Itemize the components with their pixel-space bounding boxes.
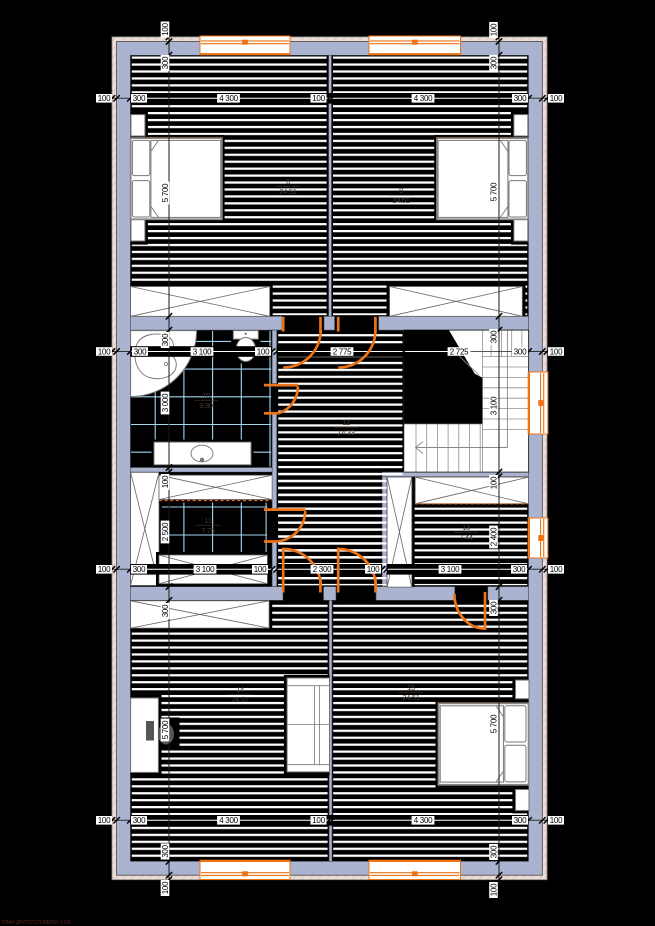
svg-text:300: 300 [161,604,170,617]
svg-text:4 300: 4 300 [414,94,433,103]
svg-text:3 100: 3 100 [489,396,498,415]
svg-text:300: 300 [133,565,146,574]
svg-text:100: 100 [312,816,325,825]
svg-text:300: 300 [134,347,147,356]
svg-text:100: 100 [98,565,111,574]
svg-text:300: 300 [161,333,170,346]
svg-text:2 725: 2 725 [450,347,469,356]
svg-text:3 100: 3 100 [196,565,215,574]
svg-text:100: 100 [98,347,111,356]
svg-text:7.75: 7.75 [201,526,215,535]
svg-text:300: 300 [133,816,146,825]
svg-text:13: 13 [462,523,470,532]
svg-text:15: 15 [407,683,415,692]
svg-text:5 700: 5 700 [489,714,498,733]
svg-text:14: 14 [236,685,244,694]
svg-text:100: 100 [161,475,170,488]
svg-text:300: 300 [514,94,527,103]
svg-text:100: 100 [257,347,270,356]
svg-text:100: 100 [550,565,563,574]
svg-text:7.44: 7.44 [459,533,473,542]
svg-text:300: 300 [489,56,498,69]
svg-text:2 775: 2 775 [333,347,352,356]
svg-text:100: 100 [550,347,563,356]
svg-text:300: 300 [161,844,170,857]
svg-text:9: 9 [399,186,403,195]
svg-text:24.51: 24.51 [231,695,248,704]
svg-text:2 500: 2 500 [161,522,170,541]
svg-text:9.30: 9.30 [199,401,213,410]
svg-text:4 300: 4 300 [219,816,238,825]
svg-text:4 300: 4 300 [414,816,433,825]
svg-text:300: 300 [514,347,527,356]
svg-text:5 700: 5 700 [161,720,170,739]
svg-text:100: 100 [489,23,498,36]
svg-text:100: 100 [367,565,380,574]
svg-text:300: 300 [133,94,146,103]
svg-text:2 300: 2 300 [313,565,332,574]
svg-text:5 700: 5 700 [161,183,170,202]
svg-text:100: 100 [550,816,563,825]
svg-text:24.51: 24.51 [402,693,419,702]
svg-text:300: 300 [489,330,498,343]
svg-text:12: 12 [342,418,350,427]
svg-text:100: 100 [161,22,170,35]
svg-text:5 700: 5 700 [489,182,498,201]
svg-text:100: 100 [550,94,563,103]
svg-text:11: 11 [204,516,211,525]
svg-text:100: 100 [98,816,111,825]
svg-text:100: 100 [312,94,325,103]
svg-text:24.51: 24.51 [279,187,296,196]
svg-text:300: 300 [489,601,498,614]
svg-text:ПЛАН ДРУГОГО ПОВЕРХУ 1:100: ПЛАН ДРУГОГО ПОВЕРХУ 1:100 [2,920,71,926]
svg-text:100: 100 [98,94,111,103]
svg-text:300: 300 [161,56,170,69]
svg-text:300: 300 [489,845,498,858]
svg-text:3 100: 3 100 [441,565,460,574]
svg-text:100: 100 [489,476,498,489]
svg-text:14.33: 14.33 [337,428,354,437]
svg-text:4 300: 4 300 [219,94,238,103]
svg-text:8: 8 [286,177,290,186]
svg-text:3 000: 3 000 [161,393,170,412]
svg-text:300: 300 [514,816,527,825]
svg-text:3 100: 3 100 [193,347,212,356]
svg-text:100: 100 [254,565,267,574]
svg-text:24.51: 24.51 [392,196,409,205]
svg-text:300: 300 [513,565,526,574]
svg-text:100: 100 [489,883,498,896]
svg-text:100: 100 [161,881,170,894]
svg-text:10: 10 [202,391,210,400]
svg-text:2 400: 2 400 [489,527,498,546]
